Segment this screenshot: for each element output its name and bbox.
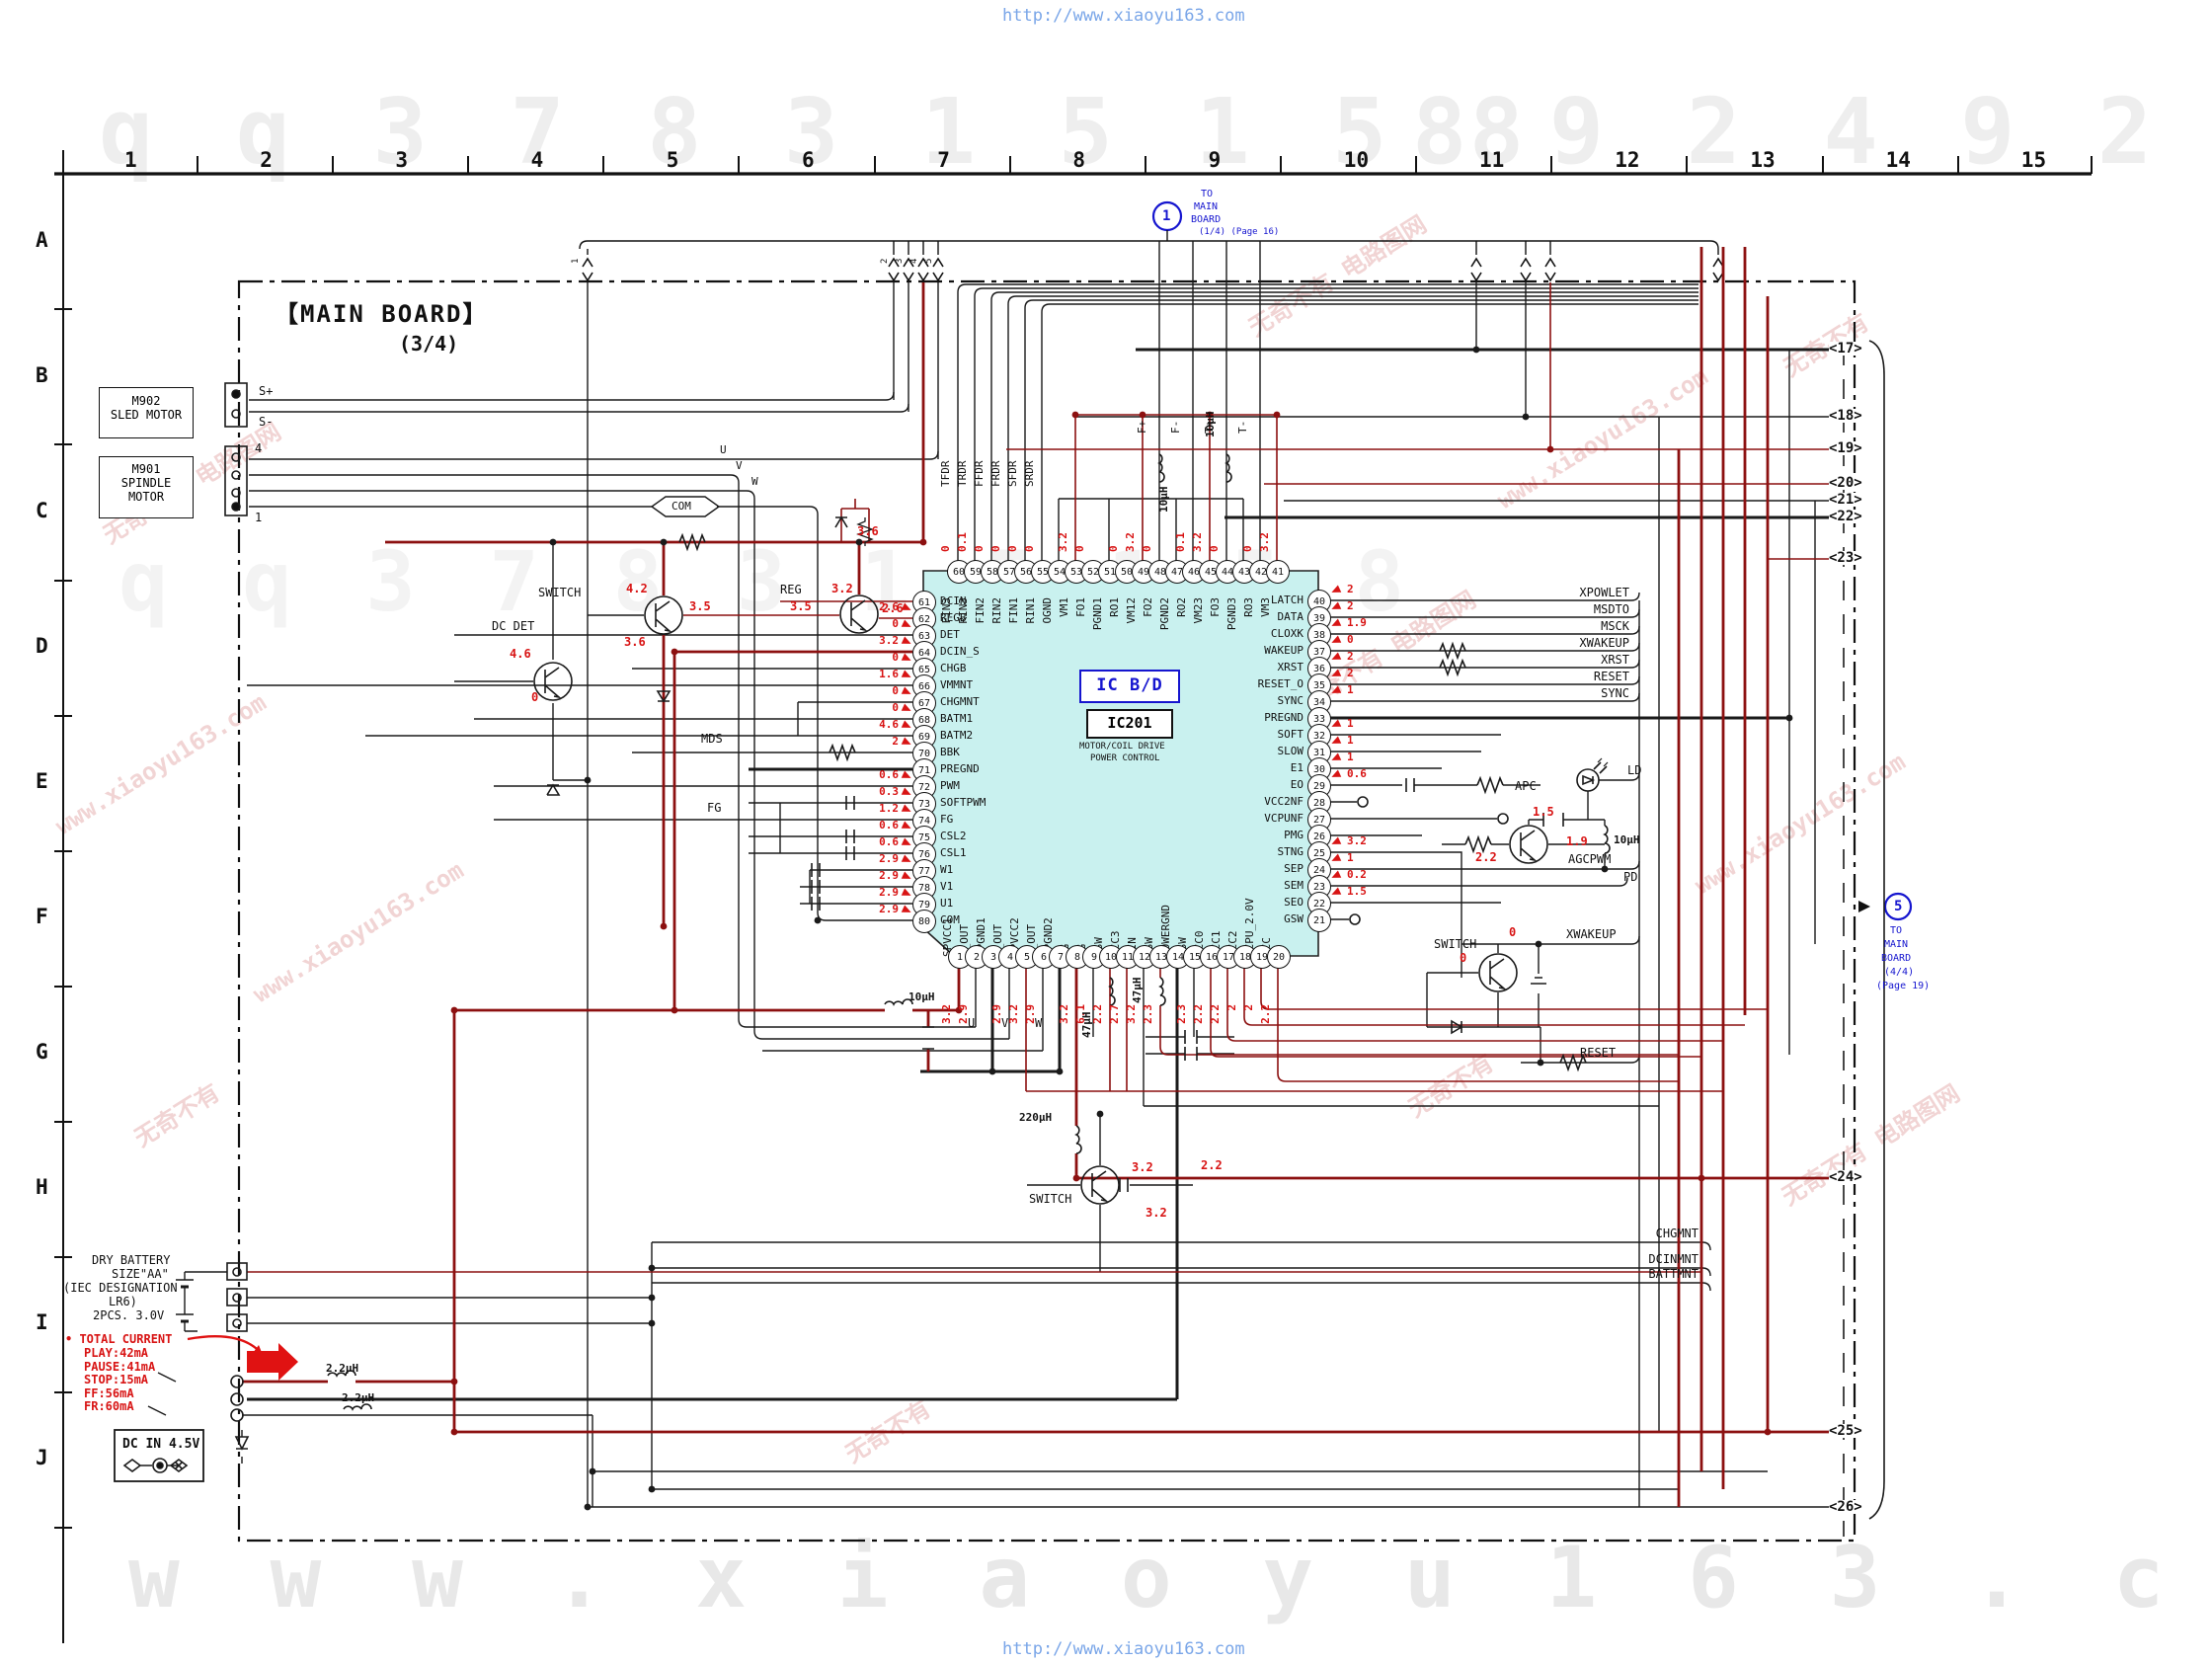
ic-pin-voltage-29: 0.6	[1347, 768, 1367, 779]
ic-pin-voltage-36: 2	[1347, 651, 1354, 662]
ic-pin-voltage-56: 0	[1007, 545, 1018, 552]
ic-pin-voltage-58: 0	[974, 545, 985, 552]
tap-chevrons	[583, 259, 1723, 280]
ruler-row-H: H	[36, 1177, 48, 1198]
ic-pin-name-VM12: VM12	[1126, 597, 1137, 663]
spindle-pin-1: 1	[255, 512, 262, 523]
ic-pin-name-VM3: VM3	[1260, 597, 1271, 663]
ic-pin-voltage-66: 1.6	[829, 669, 899, 679]
ref1-l1: TO	[1201, 190, 1213, 199]
ic-pin-name-VM1: VM1	[1059, 597, 1069, 663]
ic-pin-name-GSW: GSW	[1224, 913, 1303, 924]
annotation-l47b: 47µH	[1132, 978, 1143, 1004]
ic-pin-voltage-20: 2.2	[1260, 1004, 1271, 1050]
ref5-l5: (Page 19)	[1876, 982, 1930, 991]
edge-connector-22: <22>	[1829, 510, 1862, 523]
ic-pin-voltage-53: 3.2	[1058, 532, 1068, 552]
signal-label-RESET: RESET	[1521, 671, 1629, 682]
battery-l4: LR6)	[109, 1296, 137, 1307]
ic-pin-voltage-73: 0.3	[829, 786, 899, 797]
ic-pin-voltage-24: 1	[1347, 852, 1354, 863]
ruler-row-J: J	[36, 1448, 48, 1468]
annotation-com: COM	[671, 501, 691, 512]
wire-label-SRDR: SRDR	[1024, 461, 1035, 488]
annotation-v-swl-a: 4.2	[626, 583, 648, 594]
ic-pin-name-FO1: FO1	[1075, 597, 1086, 663]
sled-motor-name: SLED MOTOR	[100, 408, 193, 422]
ic-desc2: POWER CONTROL	[1090, 754, 1159, 763]
ruler-row-F: F	[36, 907, 48, 927]
annotation-v-swb-c: 2.2	[1201, 1159, 1223, 1171]
ref5-l1: TO	[1890, 926, 1902, 936]
annotation-v-swl-b: 3.5	[689, 600, 711, 612]
ic-pin-name-BBK: BBK	[940, 747, 960, 757]
edge-connector-24: <24>	[1829, 1170, 1862, 1184]
wire-label-bottom-U: U	[968, 1017, 975, 1029]
edge-connector-25: <25>	[1829, 1424, 1862, 1438]
battery-current-3: FF:56mA	[84, 1387, 134, 1399]
spindle-motor-name2: MOTOR	[100, 490, 193, 504]
ruler-row-B: B	[36, 365, 48, 386]
ic-pin-voltage-49: 3.2	[1125, 532, 1136, 552]
ic-pin-voltage-69: 4.6	[829, 719, 899, 730]
ic-pin-voltage-25: 3.2	[1347, 835, 1367, 846]
edge-connector-23: <23>	[1829, 551, 1862, 565]
ic-pin-voltage-32: 1	[1347, 718, 1354, 729]
ruler-row-E: E	[36, 771, 48, 792]
ic-ref-box: IC201	[1086, 709, 1173, 739]
signal-label-SYNC: SYNC	[1521, 687, 1629, 699]
wire-label-T-: T-	[1237, 421, 1248, 434]
total-current-title: • TOTAL CURRENT	[65, 1333, 172, 1345]
edge-connector-19: <19>	[1829, 441, 1862, 455]
ic-pin-name-SOFTPWM: SOFTPWM	[940, 797, 986, 808]
ic-pin-name-XRST: XRST	[1224, 662, 1303, 673]
annotation-reg: REG	[780, 584, 802, 595]
sled-pin-sminus: S-	[259, 416, 273, 428]
annotation-l220: 220µH	[1019, 1112, 1052, 1123]
ic-pin-name-CSL2: CSL2	[940, 831, 967, 841]
ic-desc1: MOTOR/COIL DRIVE	[1079, 743, 1165, 752]
ic-pin-voltage-12: 3.2	[1126, 1004, 1137, 1050]
top-tap-2: 2	[881, 259, 890, 264]
ic-pin-voltage-30: 1	[1347, 752, 1354, 762]
ic-pin-voltage-23: 0.2	[1347, 869, 1367, 880]
ref5-l2: MAIN	[1884, 940, 1908, 950]
ic-pin-voltage-10: 2.2	[1092, 1004, 1103, 1050]
battery-l2: SIZE"AA"	[112, 1268, 169, 1280]
ic-pin-voltage-76: 0.6	[829, 836, 899, 847]
ic-pin-name-FIN3: FIN3	[941, 597, 952, 663]
ruler-column-11: 11	[1479, 150, 1504, 171]
edge-connector-21: <21>	[1829, 493, 1862, 507]
annotation-xwakeup-mid: XWAKEUP	[1566, 928, 1617, 940]
top-tap-3: 3	[896, 259, 905, 264]
ic-pin-name-CHGB: CHGB	[940, 663, 967, 673]
board-subtitle: (3/4)	[399, 334, 458, 354]
ic-pin-name-SEO: SEO	[1224, 897, 1303, 908]
ic-pin-80: 80	[912, 910, 936, 933]
ic-pin-voltage-50: 0	[1108, 545, 1119, 552]
ic-pin-voltage-15: 2.3	[1176, 1004, 1187, 1050]
ruler-column-4: 4	[531, 150, 544, 171]
ruler-column-2: 2	[260, 150, 273, 171]
edge-connector-17: <17>	[1829, 342, 1862, 356]
annotation-dc-det: DC DET	[492, 620, 534, 632]
ic-pin-voltage-77: 2.9	[829, 853, 899, 864]
watermark-url-bottom: http://www.xiaoyu163.com	[1002, 1641, 1245, 1658]
ic-pin-name-VM23: VM23	[1193, 597, 1204, 663]
ruler-column-3: 3	[395, 150, 408, 171]
ic-ref: IC201	[1107, 714, 1151, 732]
ruler-row-D: D	[36, 636, 48, 657]
ic-pin-name-FG: FG	[940, 814, 953, 825]
top-tap-4: 4	[910, 259, 919, 264]
annotation-switch-left: SWITCH	[538, 587, 581, 598]
ic-type-box: IC B/D	[1079, 670, 1180, 703]
wire-label-bottom-V: V	[1001, 1017, 1008, 1029]
ic-pin-voltage-48: 0	[1142, 545, 1152, 552]
ruler-row-A: A	[36, 230, 48, 251]
ruler-column-7: 7	[937, 150, 950, 171]
ic-pin-name-PWM: PWM	[940, 780, 960, 791]
signal-label-XWAKEUP: XWAKEUP	[1521, 637, 1629, 649]
ic-pin-name-FO3: FO3	[1210, 597, 1221, 663]
ic-pin-voltage-34: 1	[1347, 684, 1354, 695]
annotation-ld: LD	[1627, 764, 1641, 776]
battery-current-4: FR:60mA	[84, 1400, 134, 1412]
ic-pin-voltage-35: 2	[1347, 668, 1354, 678]
ic-pin-voltage-65: 0	[829, 652, 899, 663]
ic-pin-name-STNG: STNG	[1224, 846, 1303, 857]
ic-pin-name-SYNC: SYNC	[1224, 695, 1303, 706]
ic-pin-name-RIN3: RIN3	[958, 597, 969, 663]
ic-type-label: IC B/D	[1096, 675, 1162, 695]
ref1-l3: BOARD	[1191, 215, 1221, 225]
ic-pin-voltage-44: 0	[1209, 545, 1220, 552]
ic-pin-voltage-60: 0	[940, 545, 951, 552]
battery-l5: 2PCS. 3.0V	[93, 1309, 164, 1321]
annotation-v-dcdet-a: 4.6	[510, 648, 531, 660]
battery-current-0: PLAY:42mA	[84, 1347, 148, 1359]
ic-pin-voltage-22: 1.5	[1347, 886, 1367, 897]
ic-pin-name-RO2: RO2	[1176, 597, 1187, 663]
ic-pin-voltage-11: 2.7	[1109, 1004, 1120, 1050]
wire-label-F+: F+	[1137, 421, 1147, 434]
ic-pin-voltage-13: 2.3	[1143, 1004, 1153, 1050]
ic-pin-voltage-5: 3.2	[1008, 1004, 1019, 1050]
annotation-mds: MDS	[701, 733, 723, 745]
ic-pin-voltage-72: 0.6	[829, 769, 899, 780]
battery-l1: DRY BATTERY	[92, 1254, 170, 1266]
ic-pin-voltage-59: 0.1	[957, 532, 968, 552]
annotation-l10b: 10µH	[1205, 412, 1216, 438]
annotation-l22a: 2.2µH	[326, 1363, 358, 1374]
ruler-column-14: 14	[1886, 150, 1911, 171]
annotation-l47a: 47µH	[1081, 1012, 1092, 1039]
edge-connector-26: <26>	[1829, 1500, 1862, 1514]
annotation-u-left: U	[720, 444, 727, 455]
annotation-v-reg-c: 2.6	[882, 602, 904, 614]
ic-pin-name-FIN1: FIN1	[1008, 597, 1019, 663]
annotation-switch-right: SWITCH	[1434, 938, 1476, 950]
ic-pin-voltage-37: 0	[1347, 634, 1354, 645]
ic-pin-name-FO2: FO2	[1143, 597, 1153, 663]
ref5-l4: (4/4)	[1884, 968, 1914, 978]
ic-pin-name-OGND: OGND	[1042, 597, 1053, 663]
ic-pin-voltage-57: 0	[990, 545, 1001, 552]
ruler-column-15: 15	[2021, 150, 2046, 171]
annotation-agcpwm: AGCPWM	[1568, 853, 1611, 865]
ic-pin-voltage-46: 0.1	[1175, 532, 1186, 552]
ic-pin-name-CSL1: CSL1	[940, 847, 967, 858]
signal-label-XPOWLET: XPOWLET	[1521, 587, 1629, 598]
signal-label-chgmnt: CHGMNT	[1600, 1227, 1698, 1239]
wire-label-FRDR: FRDR	[990, 461, 1001, 488]
edge-connector-18: <18>	[1829, 409, 1862, 423]
ic-pin-name-U1: U1	[940, 898, 953, 909]
wire-label-TFDR: TFDR	[940, 461, 951, 488]
spindle-motor-name1: SPINDLE	[100, 476, 193, 490]
ref1-number: 1	[1162, 209, 1170, 223]
top-tap-1: 1	[572, 259, 581, 264]
ruler-row-C: C	[36, 501, 48, 521]
ic-pin-voltage-8: 3.2	[1059, 1004, 1069, 1050]
wiring-layer	[0, 0, 2212, 1663]
ruler-column-6: 6	[802, 150, 815, 171]
ic-pin-voltage-39: 2	[1347, 600, 1354, 611]
wire-label-F-: F-	[1170, 421, 1181, 434]
annotation-switch-bot: SWITCH	[1029, 1193, 1071, 1205]
ruler-column-5: 5	[667, 150, 679, 171]
ref1-l4: (1/4) (Page 16)	[1199, 228, 1279, 237]
sled-pin-splus: S+	[259, 385, 273, 397]
ic-pin-voltage-17: 2.2	[1210, 1004, 1221, 1050]
annotation-v-left: V	[736, 460, 743, 471]
ic-pin-name-CHGMNT: CHGMNT	[940, 696, 980, 707]
ic-pin-voltage-16: 2.2	[1193, 1004, 1204, 1050]
ic-pin-name-PGND2: PGND2	[1159, 597, 1170, 663]
annotation-pd: PD	[1623, 871, 1637, 883]
ruler-row-I: I	[36, 1312, 48, 1333]
ic-pin-name-PGND3: PGND3	[1226, 597, 1237, 663]
ic-pin-name-VCPUNF: VCPUNF	[1224, 813, 1303, 824]
annotation-v-reg-b: 3.5	[790, 600, 812, 612]
board-title: 【MAIN BOARD】	[275, 302, 489, 326]
annotation-reset-mid: RESET	[1580, 1047, 1616, 1059]
wire-label-bottom-W: W	[1035, 1017, 1042, 1029]
ic-pin-name-BATM2: BATM2	[940, 730, 973, 741]
ic-pin-voltage-55: 0	[1024, 545, 1035, 552]
ic-pin-voltage-41: 3.2	[1259, 532, 1270, 552]
ref1-l2: MAIN	[1194, 202, 1218, 212]
ic-pin-name-SEM: SEM	[1224, 880, 1303, 891]
ruler-column-12: 12	[1615, 150, 1639, 171]
signal-label-MSCK: MSCK	[1521, 620, 1629, 632]
ic-pin-voltage-78: 2.9	[829, 870, 899, 881]
spindle-pin-4: 4	[255, 442, 262, 454]
ic-pin-voltage-42: 0	[1242, 545, 1253, 552]
annotation-v-apc-b: 1.9	[1566, 835, 1588, 847]
ic-pin-voltage-52: 0	[1074, 545, 1085, 552]
sled-motor-box: M902 SLED MOTOR	[99, 387, 194, 438]
annotation-v-swl-c: 3.6	[624, 636, 646, 648]
battery-current-2: STOP:15mA	[84, 1374, 148, 1386]
ic-pin-name-E1: E1	[1224, 762, 1303, 773]
ic-pin-name-VMMNT: VMMNT	[940, 679, 973, 690]
ic-pin-voltage-45: 3.2	[1192, 532, 1203, 552]
signal-label-battmnt: BATTMNT	[1600, 1268, 1698, 1280]
annotation-w-left: W	[751, 476, 758, 487]
ic-pin-name-RO3: RO3	[1243, 597, 1254, 663]
ic-pin-voltage-38: 1.9	[1347, 617, 1367, 628]
schematic-page: http://www.xiaoyu163.com http://www.xiao…	[0, 0, 2212, 1663]
ic-pin-voltage-74: 1.2	[829, 803, 899, 814]
ruler-column-1: 1	[124, 150, 137, 171]
spindle-motor-box: M901 SPINDLE MOTOR	[99, 456, 194, 518]
ic-pin-voltage-40: 2	[1347, 584, 1354, 594]
ic-pin-name-EO: EO	[1224, 779, 1303, 790]
ic-pin-20: 20	[1267, 945, 1291, 969]
ruler-column-10: 10	[1344, 150, 1369, 171]
ic-pin-name-SLOW: SLOW	[1224, 746, 1303, 756]
ic-pin-voltage-19: 2	[1243, 1004, 1254, 1050]
ic-pin-name-RESET_O: RESET_O	[1224, 678, 1303, 689]
ruler-column-13: 13	[1750, 150, 1775, 171]
ic-pin-21: 21	[1307, 909, 1331, 932]
battery-current-1: PAUSE:41mA	[84, 1361, 155, 1373]
ref5-l3: BOARD	[1881, 954, 1911, 964]
annotation-v-swr-b: 0	[1460, 952, 1466, 964]
annotation-fg: FG	[707, 802, 721, 814]
annotation-l22b: 2.2µH	[342, 1392, 374, 1403]
ic-pin-voltage-79: 2.9	[829, 887, 899, 898]
signal-label-MSDTO: MSDTO	[1521, 603, 1629, 615]
annotation-v-swb-b: 3.2	[1145, 1207, 1167, 1219]
ic-pin-voltage-75: 0.6	[829, 820, 899, 831]
ic-pin-voltage-31: 1	[1347, 735, 1354, 746]
ic-pin-name-RIN1: RIN1	[1025, 597, 1036, 663]
ic-pin-voltage-1: 3.2	[941, 1004, 952, 1050]
ic-pin-name-V1: V1	[940, 881, 953, 892]
signal-label-XRST: XRST	[1521, 654, 1629, 666]
ic-pin-voltage-63: 0	[829, 618, 899, 629]
ic-pin-name-BATM1: BATM1	[940, 713, 973, 724]
sled-motor-ref: M902	[100, 394, 193, 408]
annotation-v-apc-a: 1.5	[1533, 806, 1554, 818]
ic-pin-name-SEP: SEP	[1224, 863, 1303, 874]
annotation-v-reg-a: 3.2	[831, 583, 853, 594]
spindle-motor-ref: M901	[100, 462, 193, 476]
watermark-url-top: http://www.xiaoyu163.com	[1002, 8, 1245, 25]
annotation-v-swr-a: 0	[1509, 926, 1516, 938]
ic-pin-name-PMG: PMG	[1224, 830, 1303, 840]
ic-pin-voltage-18: 2	[1226, 1004, 1237, 1050]
ic-pin-voltage-80: 2.9	[829, 904, 899, 914]
ruler-column-8: 8	[1072, 150, 1085, 171]
ruler-column-9: 9	[1209, 150, 1222, 171]
wire-label-TRDR: TRDR	[957, 461, 968, 488]
battery-l3: (IEC DESIGNATION	[63, 1282, 178, 1294]
dc-in-label: DC IN 4.5V	[122, 1438, 199, 1451]
ruler-row-G: G	[36, 1042, 48, 1063]
wire-label-FFDR: FFDR	[974, 461, 985, 488]
ic-pin-name-PREGND: PREGND	[940, 763, 980, 774]
annotation-v-apc-c: 2.2	[1475, 851, 1497, 863]
annotation-l10a: 10µH	[1158, 487, 1169, 514]
annotation-l10c: 10µH	[908, 991, 935, 1002]
ic-pin-41: 41	[1266, 560, 1290, 584]
ic-pin-name-VCC2NF: VCC2NF	[1224, 796, 1303, 807]
annotation-l10d: 10µH	[1614, 834, 1640, 845]
wire-label-SFDR: SFDR	[1007, 461, 1018, 488]
ref5-number: 5	[1894, 900, 1902, 913]
ic-pin-name-PREGND: PREGND	[1224, 712, 1303, 723]
ic-pin-voltage-64: 3.2	[829, 635, 899, 646]
ic-pin-voltage-67: 0	[829, 685, 899, 696]
ic-pin-voltage-70: 2	[829, 736, 899, 747]
annotation-v-dcdet-b: 0	[531, 691, 538, 703]
edge-connector-20: <20>	[1829, 476, 1862, 490]
annotation-v-swb-a: 3.2	[1132, 1161, 1153, 1173]
annotation-v-reg-d: 3.6	[857, 525, 879, 537]
ic-pin-name-SOFT: SOFT	[1224, 729, 1303, 740]
ic-pin-name-RIN2: RIN2	[991, 597, 1002, 663]
signal-label-dcinmnt: DCINMNT	[1600, 1253, 1698, 1265]
ic-pin-name-RO1: RO1	[1109, 597, 1120, 663]
ic-pin-name-PGND1: PGND1	[1092, 597, 1103, 663]
ic-pin-name-W1: W1	[940, 864, 953, 875]
annotation-apc: APC	[1515, 780, 1537, 792]
ic-pin-voltage-68: 0	[829, 702, 899, 713]
ic-pin-name-FIN2: FIN2	[975, 597, 986, 663]
top-tap-5: 5	[925, 259, 934, 264]
